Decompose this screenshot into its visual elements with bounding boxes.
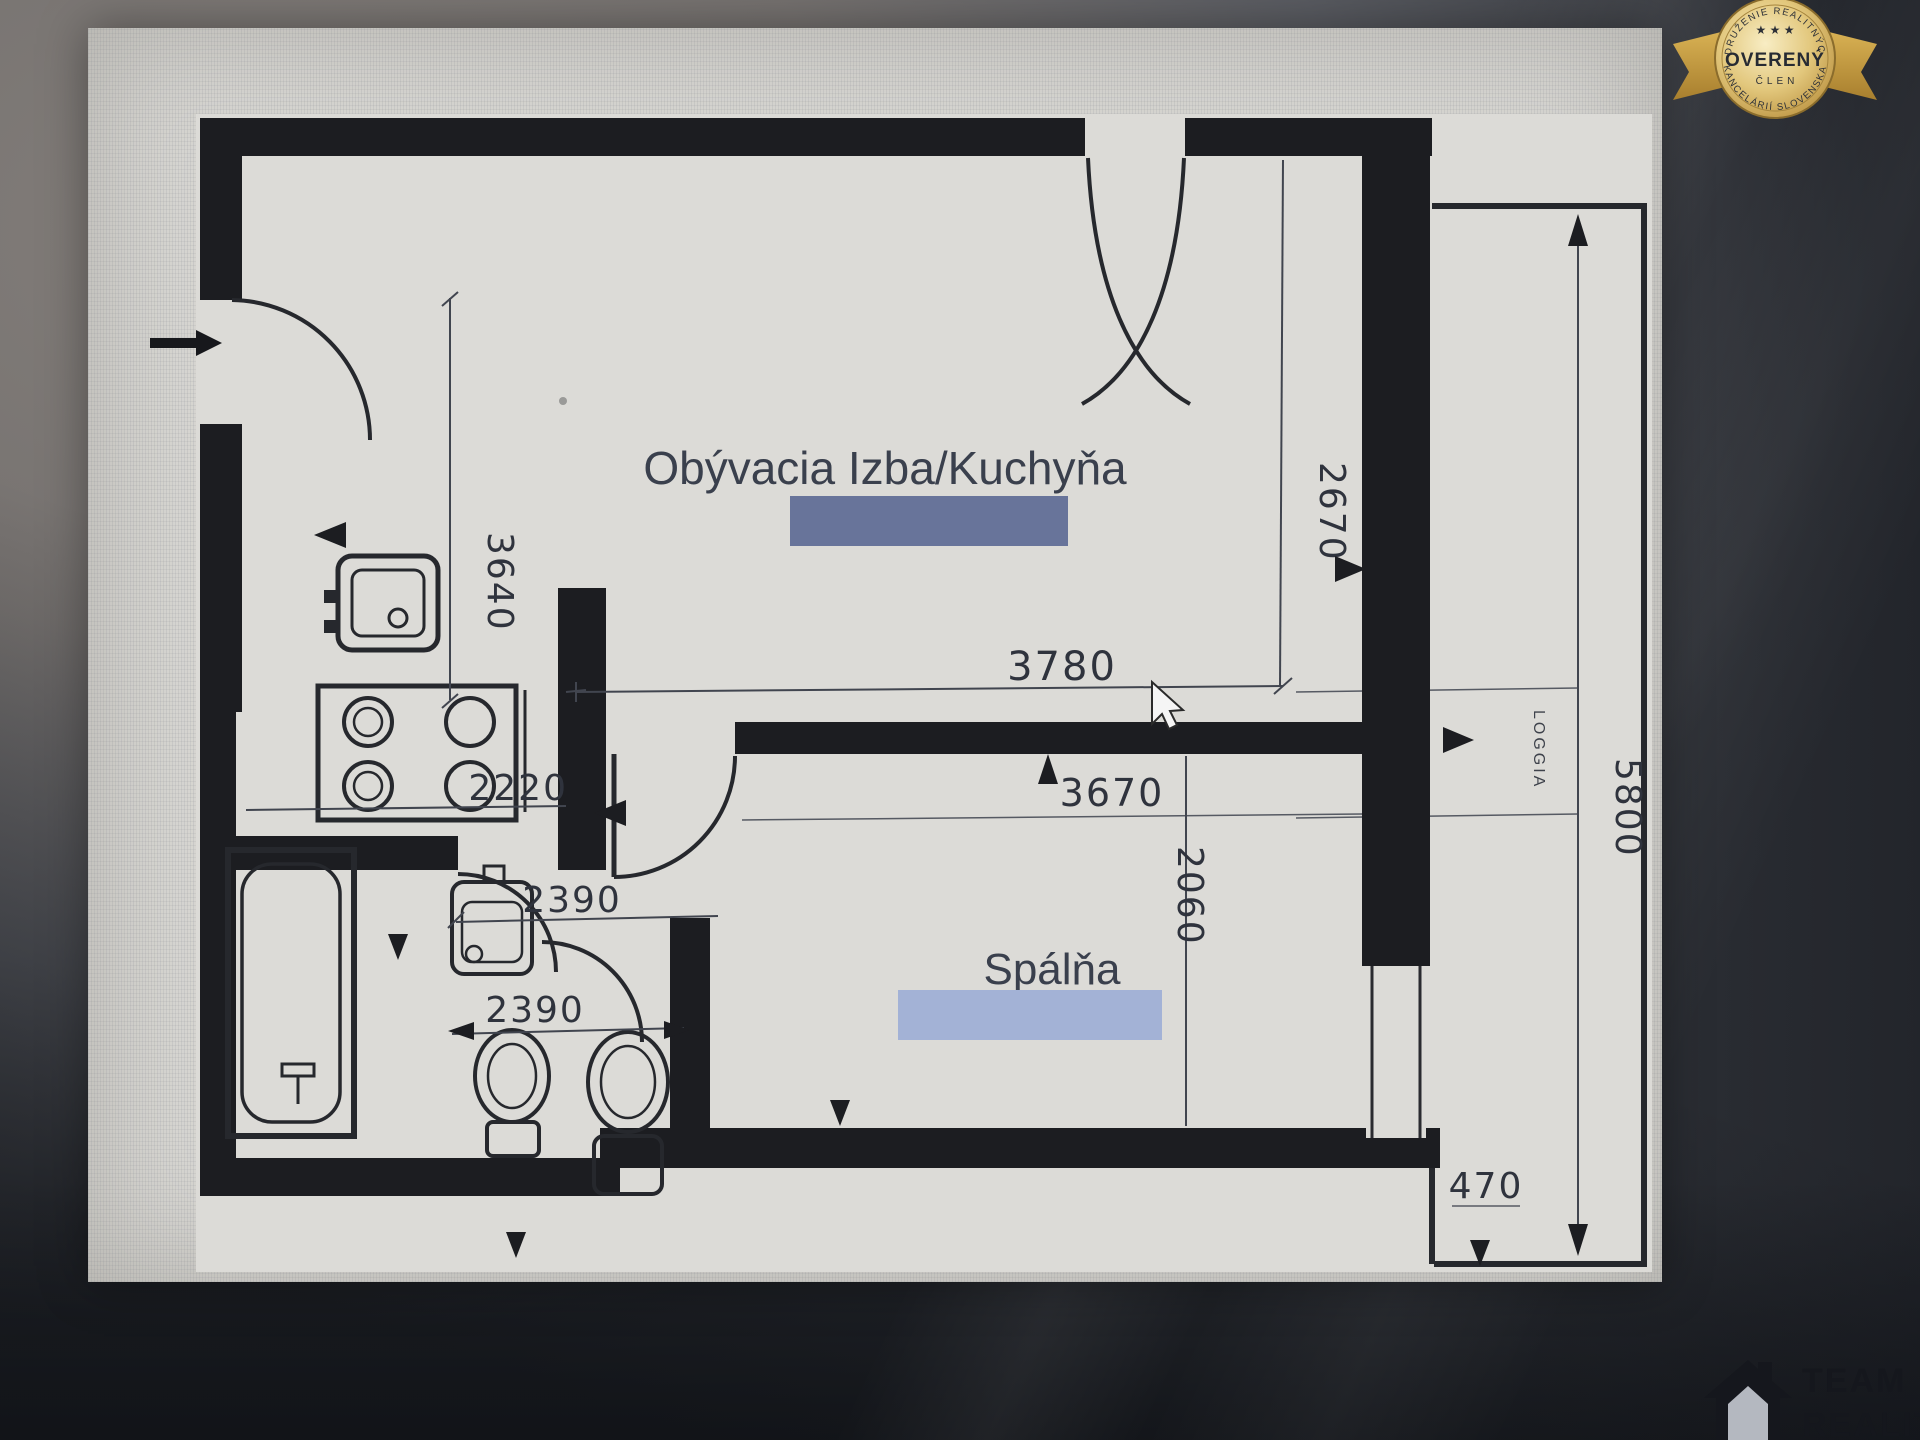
living-room-label: Obývacia Izba/Kuchyňa xyxy=(643,442,1127,494)
window-opening xyxy=(1366,966,1426,1138)
dim-label-3670: 3670 xyxy=(1060,771,1165,815)
badge-subtitle: ČLEN xyxy=(1756,74,1799,87)
bedroom-highlight xyxy=(898,990,1162,1040)
dim-label-5800: 5800 xyxy=(1607,758,1648,858)
wall-top-right xyxy=(1185,118,1432,156)
living-room-highlight xyxy=(790,496,1068,546)
badge-title: OVERENÝ xyxy=(1725,49,1825,71)
dim-label-2670: 2670 xyxy=(1311,462,1352,562)
wall-right-lower xyxy=(1362,1138,1430,1168)
dim-label-3640: 3640 xyxy=(479,532,520,632)
wall-top-left xyxy=(200,118,1085,156)
logo-text-line1: TEAM xyxy=(1802,1362,1906,1400)
wall-left-upper xyxy=(200,118,242,300)
wall-right-upper xyxy=(1362,156,1430,966)
wall-bedroom-left xyxy=(670,918,710,1130)
dim-label-2390a: 2390 xyxy=(522,880,622,921)
wall-kitchen-stub xyxy=(558,588,606,870)
bedroom-label: Spálňa xyxy=(983,945,1121,994)
wall-bedroom-separator xyxy=(735,722,1370,754)
plan-paper xyxy=(196,114,1652,1272)
wall-bottom-main xyxy=(600,1128,1440,1168)
dim-label-2220: 2220 xyxy=(468,768,568,809)
bedroom-window xyxy=(1366,966,1426,1138)
wall-bottom-bath xyxy=(200,1158,620,1196)
agency-logo: TEAM REALITY xyxy=(1704,1360,1920,1440)
verified-badge: ZDRUŽENIE REALITNÝCH ★ ★ ★ OVERENÝ ČLEN … xyxy=(1659,0,1877,118)
wall-left-mid xyxy=(200,424,242,712)
dim-label-2390b: 2390 xyxy=(485,990,585,1031)
dim-label-470: 470 xyxy=(1449,1166,1524,1207)
dim-label-3780: 3780 xyxy=(1007,644,1117,690)
loggia-label: LOGGIA xyxy=(1530,710,1547,789)
dust-speck xyxy=(559,397,567,405)
badge-stars: ★ ★ ★ xyxy=(1756,23,1795,37)
dim-label-2060: 2060 xyxy=(1169,846,1210,946)
floor-plan-drawing: 3640 2670 3780 2220 3670 2390 2390 2060 … xyxy=(0,0,1920,1440)
logo-text-line2: REALITY xyxy=(1802,1406,1920,1440)
